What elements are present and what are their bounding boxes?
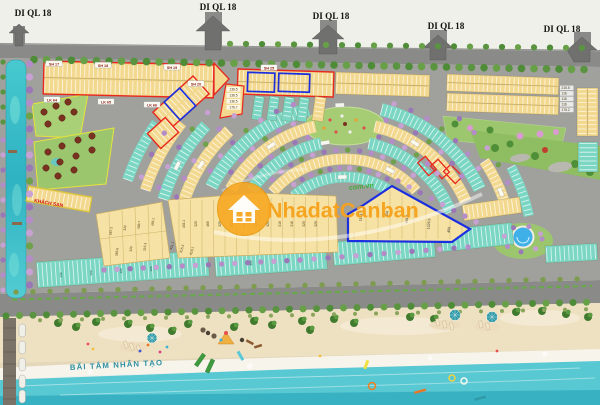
tree-icon bbox=[414, 152, 419, 157]
tree-icon bbox=[26, 190, 33, 197]
tree-icon bbox=[164, 316, 168, 320]
tree-icon bbox=[180, 59, 188, 67]
plot-area-number: 469 bbox=[206, 221, 210, 227]
master-plan-map: DI QL 18 DI QL 18 DI QL 18 DI QL 18 DI Q… bbox=[0, 0, 600, 405]
tree-icon bbox=[305, 61, 313, 69]
tree-icon bbox=[337, 166, 342, 171]
tree-icon bbox=[410, 313, 415, 318]
exit-label: DI QL 18 bbox=[15, 8, 52, 18]
tree-icon bbox=[0, 104, 5, 109]
plot-area-number: 320 bbox=[123, 225, 127, 231]
tree-icon bbox=[333, 148, 338, 153]
tree-icon bbox=[485, 145, 490, 150]
tree-icon bbox=[472, 279, 477, 284]
tree-icon bbox=[355, 62, 363, 70]
tree-icon bbox=[297, 257, 302, 262]
exit-label: DI QL 18 bbox=[200, 2, 237, 12]
tree-icon bbox=[111, 310, 118, 317]
tree-icon bbox=[26, 60, 33, 67]
tree-icon bbox=[38, 318, 42, 322]
tree-icon bbox=[479, 309, 483, 313]
tree-icon bbox=[319, 282, 324, 287]
plot-area-number: 120 bbox=[59, 272, 63, 277]
tree-icon bbox=[380, 62, 388, 70]
block-tag-label: LK 66 bbox=[147, 103, 157, 107]
tree-icon bbox=[325, 255, 330, 260]
tree-icon bbox=[248, 314, 252, 318]
tree-icon bbox=[435, 43, 441, 49]
tree-icon bbox=[401, 165, 406, 170]
tree-icon bbox=[232, 307, 239, 314]
tree-icon bbox=[219, 261, 224, 266]
tree-icon bbox=[259, 41, 265, 47]
tree-icon bbox=[0, 119, 5, 124]
tree-icon bbox=[374, 312, 378, 316]
tree-icon bbox=[178, 308, 185, 315]
tree-icon bbox=[505, 244, 510, 249]
tree-icon bbox=[0, 59, 5, 64]
tree-icon bbox=[0, 287, 5, 292]
tree-icon bbox=[165, 309, 172, 316]
tree-icon bbox=[556, 299, 563, 306]
tree-icon bbox=[269, 177, 274, 182]
tree-icon bbox=[128, 320, 133, 325]
tree-icon bbox=[468, 64, 476, 72]
tree-icon bbox=[339, 254, 344, 259]
tree-icon bbox=[384, 118, 389, 123]
tree-icon bbox=[367, 304, 374, 311]
block-tag-label: SH 18 bbox=[98, 64, 108, 68]
tree-icon bbox=[243, 41, 249, 47]
tree-icon bbox=[180, 263, 185, 268]
tree-icon bbox=[258, 118, 263, 123]
tree-icon bbox=[26, 229, 33, 236]
tree-icon bbox=[506, 278, 511, 283]
tree-icon bbox=[302, 283, 307, 288]
block-tag-plate bbox=[338, 175, 347, 179]
tree-icon bbox=[246, 307, 253, 314]
tree-icon bbox=[450, 161, 455, 166]
tree-icon bbox=[43, 311, 50, 318]
tree-icon bbox=[300, 177, 305, 182]
tree-icon bbox=[219, 307, 226, 314]
beach-umbrella-icon bbox=[450, 310, 461, 321]
tree-icon bbox=[419, 43, 425, 49]
tree-icon bbox=[59, 318, 63, 322]
tree-icon bbox=[26, 138, 33, 145]
plot-area-number: 120 bbox=[149, 266, 153, 271]
tree-icon bbox=[280, 60, 288, 68]
tree-icon bbox=[519, 249, 524, 254]
tree-icon bbox=[26, 281, 33, 288]
tree-icon bbox=[376, 172, 381, 177]
tree-icon bbox=[437, 247, 442, 252]
tree-icon bbox=[405, 63, 413, 71]
house-row bbox=[335, 72, 430, 97]
tree-icon bbox=[70, 311, 77, 318]
plot-area-number: 116 bbox=[562, 97, 567, 101]
tree-icon bbox=[167, 264, 172, 269]
tree-icon bbox=[434, 171, 439, 176]
tree-icon bbox=[305, 135, 310, 140]
watermark-brand: NhadatCanban bbox=[267, 199, 419, 223]
tree-icon bbox=[155, 58, 163, 66]
tree-icon bbox=[0, 137, 5, 142]
tree-icon bbox=[489, 278, 494, 283]
tree-icon bbox=[395, 311, 399, 315]
tree-icon bbox=[421, 303, 428, 310]
tree-icon bbox=[234, 323, 239, 328]
tree-icon bbox=[381, 251, 386, 256]
tree-icon bbox=[439, 149, 444, 154]
tree-icon bbox=[455, 64, 463, 72]
tree-icon bbox=[353, 281, 358, 286]
tree-icon bbox=[286, 306, 293, 313]
tree-icon bbox=[588, 313, 593, 318]
tree-icon bbox=[496, 162, 501, 167]
tree-icon bbox=[203, 142, 208, 147]
tree-icon bbox=[150, 324, 155, 329]
tree-icon bbox=[523, 277, 528, 282]
tree-icon bbox=[529, 300, 536, 307]
house-row bbox=[545, 243, 598, 263]
exit-label: DI QL 18 bbox=[544, 24, 581, 34]
tree-icon bbox=[435, 302, 442, 309]
tree-icon bbox=[217, 285, 222, 290]
tree-icon bbox=[476, 166, 481, 171]
tree-icon bbox=[232, 261, 237, 266]
tree-icon bbox=[403, 43, 409, 49]
tree-icon bbox=[439, 126, 444, 131]
tree-icon bbox=[408, 108, 413, 113]
tree-icon bbox=[76, 323, 81, 328]
tree-icon bbox=[574, 276, 579, 281]
tree-icon bbox=[395, 250, 400, 255]
tree-icon bbox=[579, 45, 585, 51]
tree-icon bbox=[149, 286, 154, 291]
tree-icon bbox=[387, 43, 393, 49]
tree-icon bbox=[483, 44, 489, 50]
tree-icon bbox=[26, 125, 33, 132]
tree-icon bbox=[0, 242, 5, 247]
tree-icon bbox=[318, 169, 323, 174]
tree-icon bbox=[440, 202, 445, 207]
tree-icon bbox=[26, 86, 33, 93]
tree-icon bbox=[339, 42, 345, 48]
house-row bbox=[446, 93, 559, 115]
house-row bbox=[578, 142, 598, 172]
tree-icon bbox=[191, 158, 196, 163]
tree-icon bbox=[190, 126, 195, 131]
plot-area-number: 136.5 bbox=[229, 88, 237, 92]
tree-icon bbox=[307, 42, 313, 48]
tree-icon bbox=[268, 154, 273, 159]
plot-area-number: 567.2 bbox=[109, 226, 114, 235]
tree-icon bbox=[343, 61, 351, 69]
tree-icon bbox=[430, 63, 438, 71]
tree-icon bbox=[568, 66, 576, 74]
tree-icon bbox=[547, 45, 553, 51]
tree-icon bbox=[166, 286, 171, 291]
tree-icon bbox=[185, 315, 189, 319]
tree-icon bbox=[543, 65, 551, 73]
block-tag bbox=[335, 103, 344, 107]
tree-icon bbox=[336, 282, 341, 287]
tree-icon bbox=[238, 157, 243, 162]
tree-icon bbox=[500, 309, 504, 313]
tree-icon bbox=[172, 327, 177, 332]
tree-icon bbox=[138, 309, 145, 316]
tree-icon bbox=[26, 255, 33, 262]
foam-dot bbox=[247, 363, 253, 369]
tree-icon bbox=[563, 308, 567, 312]
canal bbox=[6, 60, 26, 298]
tree-icon bbox=[143, 316, 147, 320]
tree-icon bbox=[455, 279, 460, 284]
tree-icon bbox=[493, 64, 501, 72]
tree-icon bbox=[0, 227, 5, 232]
tree-icon bbox=[443, 63, 451, 71]
tree-icon bbox=[127, 266, 132, 271]
tree-icon bbox=[162, 130, 167, 135]
tree-icon bbox=[408, 303, 415, 310]
tree-icon bbox=[505, 64, 513, 72]
tree-icon bbox=[583, 299, 590, 306]
tree-icon bbox=[563, 45, 569, 51]
tree-icon bbox=[429, 196, 434, 201]
tree-icon bbox=[570, 299, 577, 306]
tree-icon bbox=[156, 185, 161, 190]
tree-icon bbox=[26, 216, 33, 223]
tree-icon bbox=[284, 258, 289, 263]
tree-icon bbox=[300, 305, 307, 312]
tree-icon bbox=[139, 174, 144, 179]
tree-icon bbox=[299, 157, 304, 162]
exit-label: DI QL 18 bbox=[428, 21, 465, 31]
tree-icon bbox=[411, 173, 416, 178]
tree-icon bbox=[68, 57, 76, 65]
tree-icon bbox=[26, 268, 33, 275]
tree-icon bbox=[206, 315, 210, 319]
tree-icon bbox=[357, 148, 362, 153]
tree-icon bbox=[227, 314, 231, 318]
tree-icon bbox=[141, 265, 146, 270]
foam-dot bbox=[428, 356, 433, 361]
tree-icon bbox=[280, 146, 285, 151]
tree-icon bbox=[499, 44, 505, 50]
boats bbox=[19, 324, 26, 403]
tree-icon bbox=[272, 321, 277, 326]
tree-icon bbox=[395, 178, 400, 183]
tree-icon bbox=[13, 289, 18, 294]
tree-icon bbox=[389, 139, 394, 144]
tree-icon bbox=[416, 311, 420, 315]
tree-icon bbox=[340, 304, 347, 311]
tree-icon bbox=[291, 182, 296, 187]
tree-icon bbox=[26, 203, 33, 210]
tree-icon bbox=[192, 308, 199, 315]
tree-icon bbox=[176, 145, 181, 150]
plot-area-number: 116 bbox=[562, 92, 567, 96]
tree-icon bbox=[205, 110, 210, 115]
tree-icon bbox=[218, 59, 226, 67]
tree-icon bbox=[288, 162, 293, 167]
tree-icon bbox=[274, 109, 279, 114]
tree-icon bbox=[543, 300, 550, 307]
tree-icon bbox=[80, 317, 84, 321]
tree-icon bbox=[393, 62, 401, 70]
tree-icon bbox=[271, 259, 276, 264]
tree-icon bbox=[268, 283, 273, 288]
tree-icon bbox=[98, 287, 103, 292]
tree-icon bbox=[26, 99, 33, 106]
tree-icon bbox=[230, 140, 235, 145]
tree-icon bbox=[208, 168, 213, 173]
tree-icon bbox=[584, 307, 588, 311]
canal-highlight bbox=[12, 184, 22, 216]
tree-icon bbox=[290, 313, 294, 317]
plot-area-number: 320 bbox=[249, 260, 253, 265]
tree-icon bbox=[0, 182, 5, 187]
tree-icon bbox=[276, 128, 281, 133]
tree-icon bbox=[154, 265, 159, 270]
plot-area-number: 175.2 bbox=[562, 108, 570, 112]
tree-icon bbox=[540, 277, 545, 282]
block-tag: SH 25 bbox=[261, 65, 277, 71]
tree-icon bbox=[542, 308, 546, 312]
tree-icon bbox=[505, 180, 510, 185]
tree-icon bbox=[0, 272, 5, 277]
tree-icon bbox=[437, 310, 441, 314]
tree-icon bbox=[511, 225, 516, 230]
tree-icon bbox=[538, 231, 543, 236]
tree-icon bbox=[354, 304, 361, 311]
tree-icon bbox=[84, 311, 91, 318]
tree-icon bbox=[26, 177, 33, 184]
tree-icon bbox=[174, 194, 179, 199]
tree-icon bbox=[376, 134, 381, 139]
tree-icon bbox=[232, 113, 237, 118]
block-tag: SH 19 bbox=[164, 64, 180, 70]
tree-icon bbox=[471, 130, 476, 135]
pool bbox=[513, 227, 534, 248]
plot-area-number: 176.7 bbox=[229, 106, 237, 110]
tree-icon bbox=[521, 309, 525, 313]
tree-icon bbox=[413, 130, 418, 135]
tree-icon bbox=[453, 138, 458, 143]
tree-icon bbox=[540, 237, 545, 242]
tree-icon bbox=[193, 263, 198, 268]
exit-label: DI QL 18 bbox=[313, 11, 350, 21]
plot-area-number: 455.1 bbox=[151, 217, 156, 226]
canal-highlight bbox=[10, 96, 20, 124]
tree-icon bbox=[489, 301, 496, 308]
tree-icon bbox=[332, 312, 336, 316]
tree-icon bbox=[258, 259, 263, 264]
tree-icon bbox=[327, 167, 332, 172]
tree-icon bbox=[165, 164, 170, 169]
tree-icon bbox=[327, 305, 334, 312]
tree-icon bbox=[0, 197, 5, 202]
tree-icon bbox=[205, 308, 212, 315]
tree-icon bbox=[26, 242, 33, 249]
house-row bbox=[446, 74, 559, 95]
block-tag bbox=[338, 175, 347, 179]
plot-area-number: 116 bbox=[562, 103, 567, 107]
tree-icon bbox=[421, 280, 426, 285]
tree-icon bbox=[330, 61, 338, 69]
tree-icon bbox=[353, 312, 357, 316]
tree-icon bbox=[57, 311, 64, 318]
tree-icon bbox=[26, 164, 33, 171]
tree-icon bbox=[228, 169, 233, 174]
tree-icon bbox=[311, 313, 315, 317]
tree-icon bbox=[130, 58, 138, 66]
tree-icon bbox=[418, 63, 426, 71]
tree-icon bbox=[0, 257, 5, 262]
tree-icon bbox=[354, 319, 359, 324]
tree-icon bbox=[321, 149, 326, 154]
tree-icon bbox=[292, 140, 297, 145]
tree-icon bbox=[259, 306, 266, 313]
tree-icon bbox=[118, 57, 126, 65]
tree-icon bbox=[0, 74, 5, 79]
tree-icon bbox=[323, 42, 329, 48]
tree-icon bbox=[0, 152, 5, 157]
tree-icon bbox=[467, 44, 473, 50]
tree-icon bbox=[149, 152, 154, 157]
tree-icon bbox=[310, 152, 315, 157]
tree-icon bbox=[273, 306, 280, 313]
tree-icon bbox=[188, 320, 193, 325]
house-row-block bbox=[545, 243, 598, 263]
tree-icon bbox=[345, 147, 350, 152]
block-tag: SH 17 bbox=[46, 61, 62, 67]
tree-icon bbox=[380, 154, 385, 159]
tree-icon bbox=[0, 212, 5, 217]
block-tag: LK 64 bbox=[44, 97, 60, 103]
tree-icon bbox=[418, 190, 423, 195]
tree-icon bbox=[518, 65, 526, 73]
plot-area-number: 215.5 bbox=[562, 86, 570, 90]
block-tag: SH 18 bbox=[95, 62, 111, 68]
masterplan-screenshot: DI QL 18 DI QL 18 DI QL 18 DI QL 18 DI Q… bbox=[0, 0, 600, 405]
plot-area-number: 488.7 bbox=[137, 220, 142, 229]
tree-icon bbox=[385, 176, 390, 181]
tree-icon bbox=[293, 61, 301, 69]
tree-icon bbox=[462, 302, 469, 309]
tree-icon bbox=[97, 310, 104, 317]
tree-icon bbox=[404, 280, 409, 285]
block-tag-label: LK 65 bbox=[101, 100, 111, 104]
tree-icon bbox=[262, 136, 267, 141]
tree-icon bbox=[366, 169, 371, 174]
tree-icon bbox=[369, 151, 374, 156]
foam-dot bbox=[542, 351, 548, 357]
tree-icon bbox=[227, 41, 233, 47]
tree-icon bbox=[516, 300, 523, 307]
tree-icon bbox=[122, 317, 126, 321]
tree-icon bbox=[473, 219, 478, 224]
block-tag: LK 65 bbox=[98, 99, 114, 105]
tree-icon bbox=[0, 89, 5, 94]
tree-icon bbox=[399, 123, 404, 128]
tree-icon bbox=[370, 281, 375, 286]
tree-icon bbox=[353, 253, 358, 258]
tree-icon bbox=[30, 312, 37, 319]
tree-icon bbox=[465, 244, 470, 249]
tree-icon bbox=[367, 252, 372, 257]
